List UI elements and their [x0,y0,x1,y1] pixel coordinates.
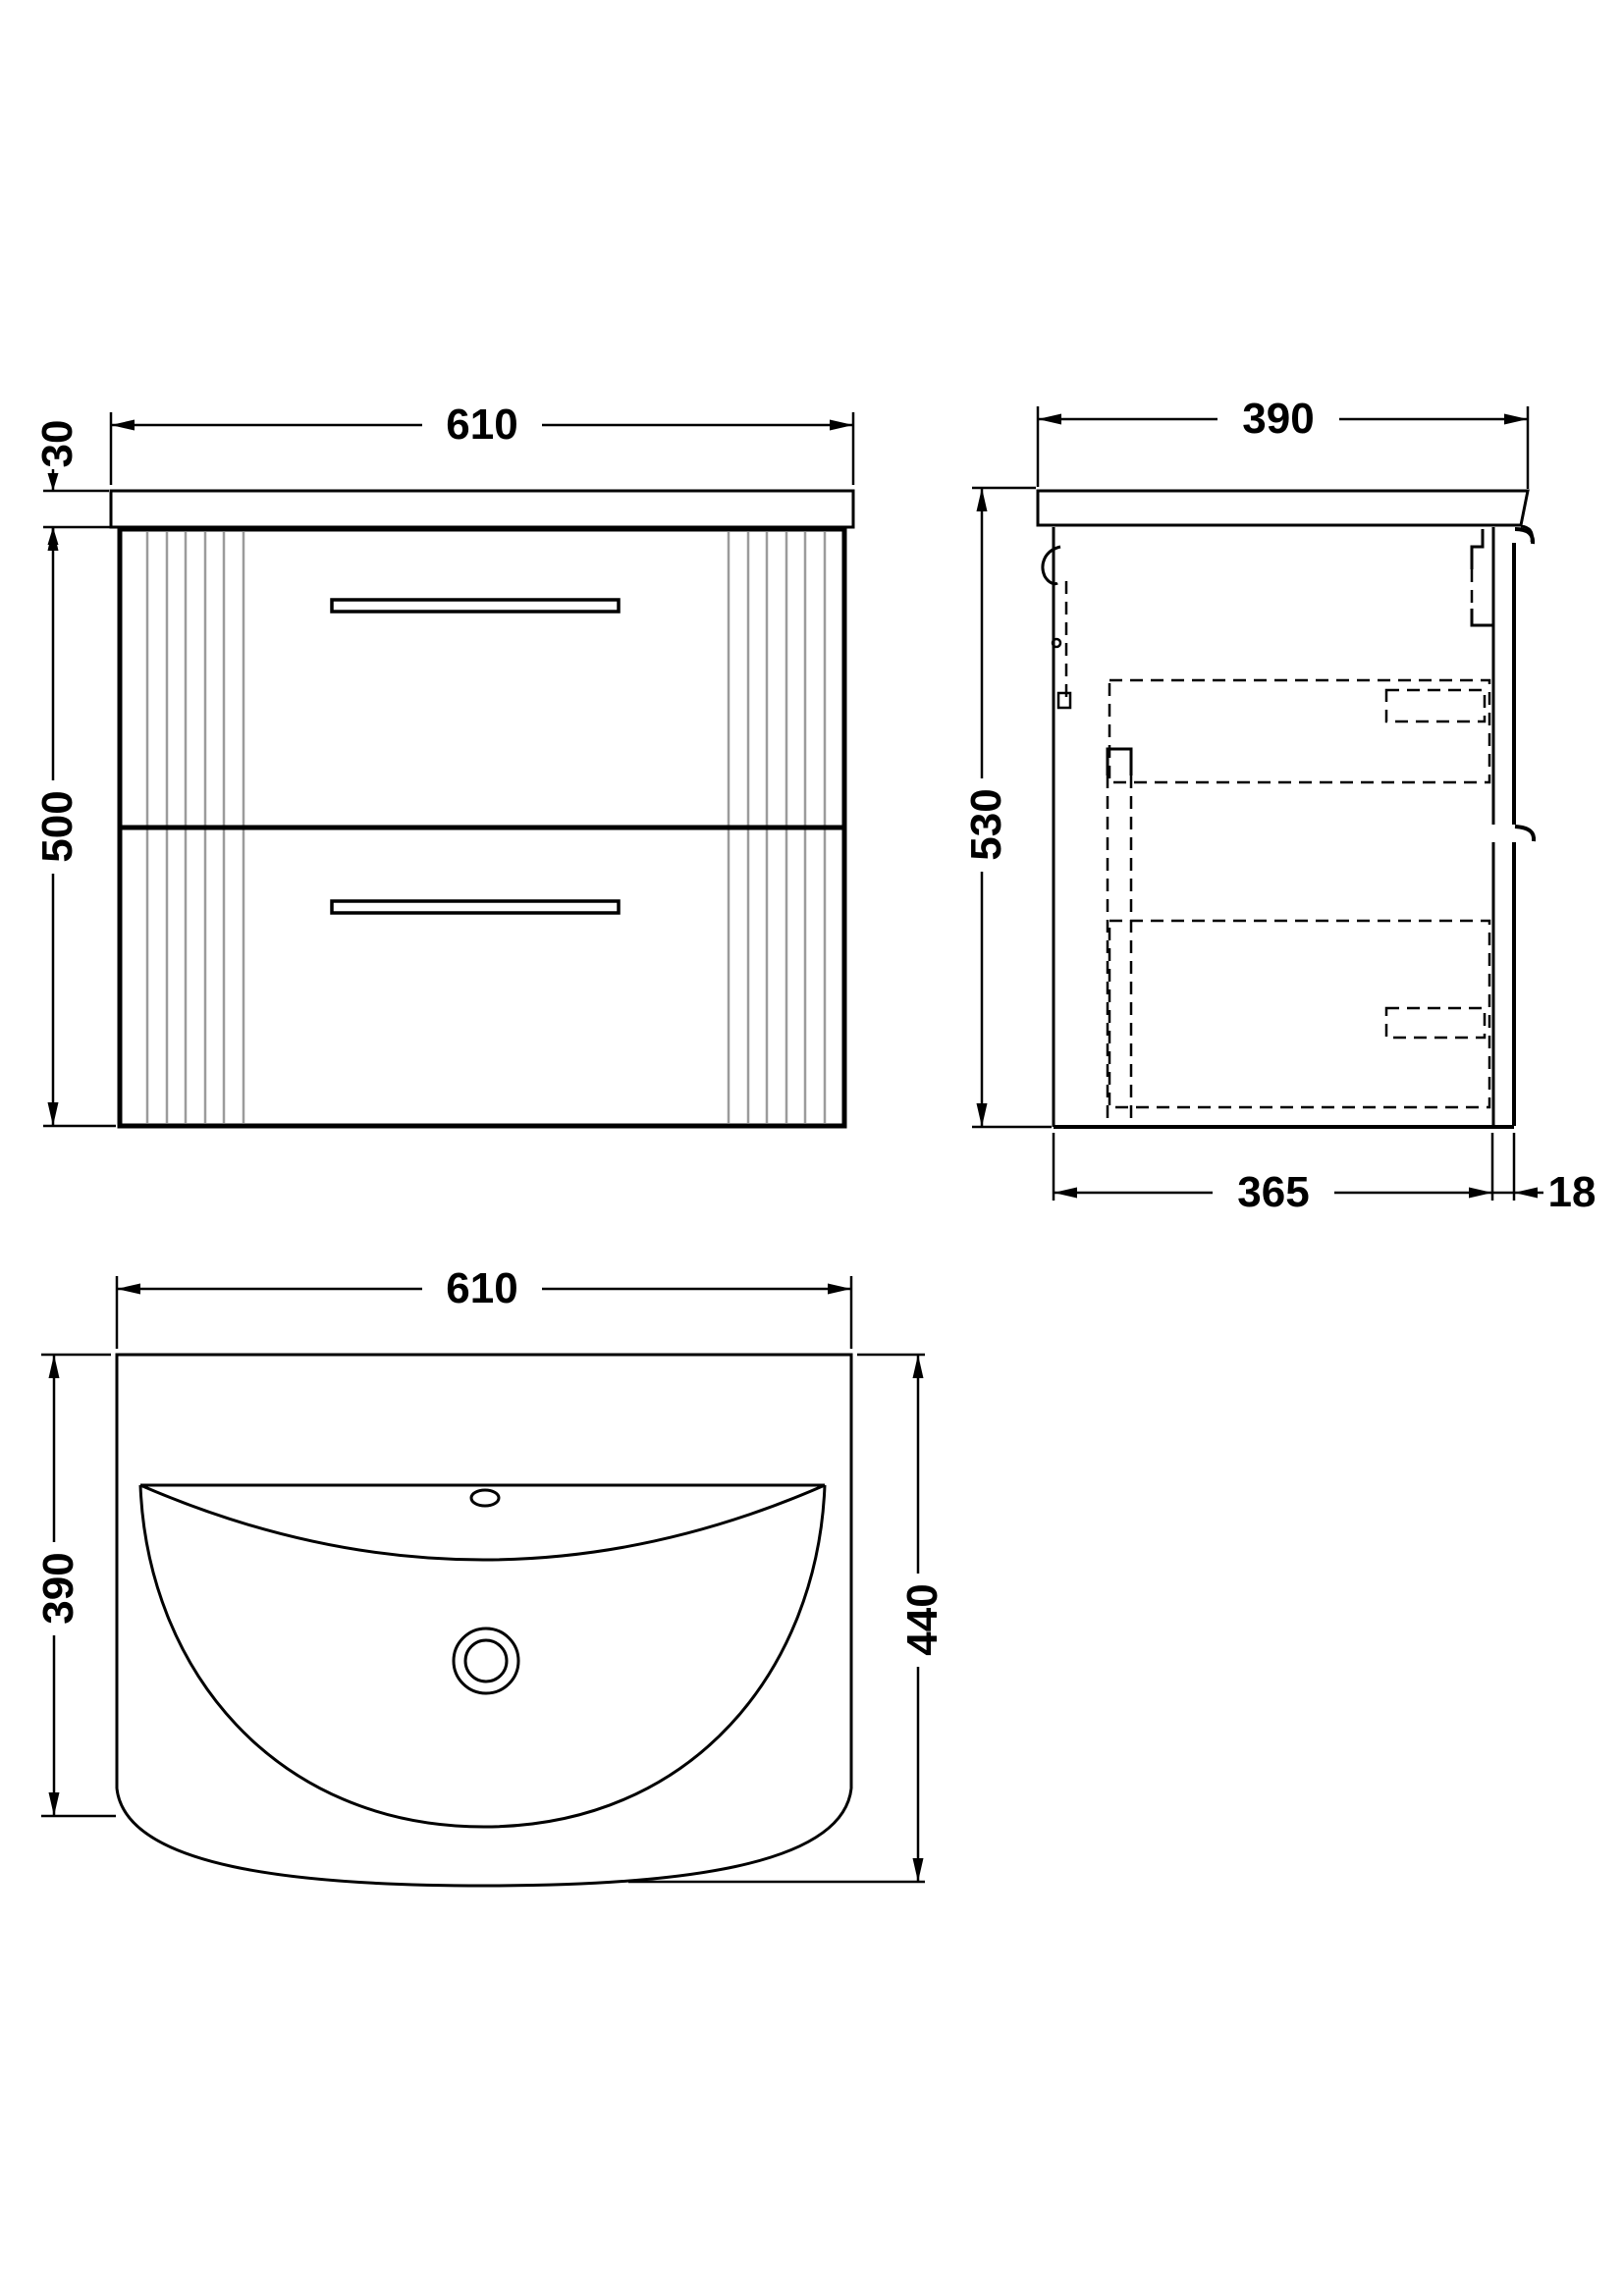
dimension-side-height: 530 [962,488,1052,1127]
dimension-basin-depth: 390 [34,1355,116,1816]
dimension-cabinet-height: 500 [33,527,116,1126]
drawer-handle-top [332,600,619,612]
dimension-overall-depth: 440 [628,1355,947,1882]
dimension-plan-width: 610 [117,1264,851,1349]
dim-label-basin-depth: 390 [34,1552,82,1624]
bowl-back-curve [140,1485,825,1560]
front-view: 610 30 500 [33,400,853,1126]
worktop-front [111,491,853,527]
drawer-front-panel [1493,527,1534,1126]
dimension-front-width: 610 [111,400,853,485]
drawer-box-top-dashed [1109,680,1489,782]
dimension-worktop-thickness: 30 [33,420,114,550]
dim-label-cabinet-height: 500 [33,790,81,862]
side-view: 390 530 365 18 [962,395,1596,1216]
waste-pipe-hidden [1108,749,1131,1126]
tap-hole [471,1490,499,1506]
dimension-front-panel-thickness: 18 [1492,1133,1596,1216]
dim-label-worktop-thickness: 30 [33,420,81,468]
dim-label-front-width: 610 [446,400,517,449]
basin-front-curve [117,1789,851,1886]
wall-bracket [1043,547,1070,708]
drawer-runner-bottom-dashed [1386,1008,1485,1038]
worktop-side [1038,491,1528,525]
waste-hole-inner [465,1640,507,1682]
dimension-cabinet-depth: 365 [1054,1133,1492,1216]
dim-label-side-height: 530 [962,788,1010,860]
drawer-runner-top-dashed [1386,690,1485,721]
drawer-handle-bottom [332,901,619,913]
dim-label-cabinet-depth: 365 [1237,1168,1309,1216]
waste-hole-outer [454,1629,518,1693]
dim-label-side-depth: 390 [1242,395,1314,443]
dim-label-overall-depth: 440 [898,1583,947,1655]
drawer-handle-bottom-side [1515,827,1534,841]
dimension-side-depth: 390 [1038,395,1528,489]
fixing-bracket [1472,529,1492,625]
bowl-front-curve [140,1485,825,1827]
drawer-handle-top-side [1515,529,1533,544]
dim-label-plan-width: 610 [446,1264,517,1312]
basin-outline [117,1355,851,1789]
drawer-box-bottom-dashed [1109,921,1489,1107]
technical-drawing-sheet: 610 30 500 [0,0,1623,2296]
dim-label-front-panel-thickness: 18 [1548,1168,1596,1216]
plan-view: 610 390 440 [34,1264,947,1886]
